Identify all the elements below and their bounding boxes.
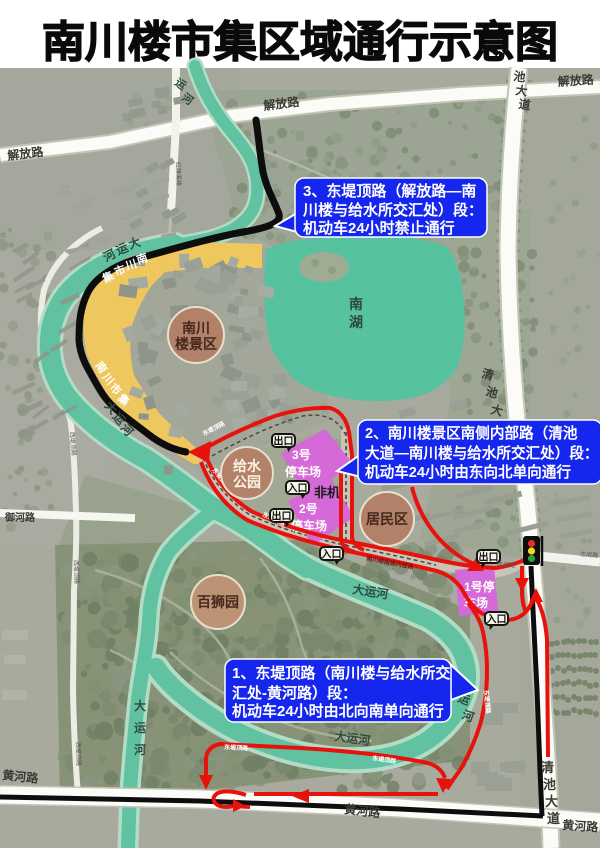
svg-text:河: 河 [133,742,146,757]
svg-text:机动车24小时禁止通行: 机动车24小时禁止通行 [303,219,455,237]
svg-text:2、南川楼景区南侧内部路（清池: 2、南川楼景区南侧内部路（清池 [365,424,578,442]
svg-text:非机: 非机 [314,485,340,500]
svg-text:1、东堤顶路（南川楼与给水所交: 1、东堤顶路（南川楼与给水所交 [232,664,450,682]
svg-text:出口: 出口 [274,435,294,448]
svg-text:停车场: 停车场 [285,464,321,479]
svg-text:出口: 出口 [272,510,292,523]
svg-text:御河路: 御河路 [4,511,36,524]
svg-text:池: 池 [543,777,556,792]
svg-text:清: 清 [541,760,554,775]
svg-text:2号: 2号 [299,501,318,516]
svg-text:黄河路: 黄河路 [562,817,600,835]
svg-text:机动车24小时由北向南单向通行: 机动车24小时由北向南单向通行 [232,702,444,720]
svg-text:入口: 入口 [288,483,308,495]
svg-text:给水: 给水 [233,458,262,474]
svg-text:3号: 3号 [292,447,311,462]
svg-text:运: 运 [134,721,146,735]
svg-text:出口: 出口 [479,551,499,564]
svg-text:南: 南 [349,296,363,312]
svg-text:大: 大 [515,82,529,99]
svg-text:解放路: 解放路 [557,71,595,89]
svg-text:楼景区: 楼景区 [175,336,217,352]
svg-text:池: 池 [513,68,527,85]
svg-text:公园: 公园 [233,474,261,490]
svg-text:道: 道 [547,811,560,826]
svg-text:大: 大 [134,698,146,713]
svg-text:川楼与给水所交汇处）段：: 川楼与给水所交汇处）段： [302,201,483,219]
svg-text:入口: 入口 [487,614,507,626]
svg-text:湖: 湖 [349,314,363,330]
svg-text:汇处-黄河路）段：: 汇处-黄河路）段： [232,684,357,702]
svg-text:3、东堤顶路（解放路—南: 3、东堤顶路（解放路—南 [303,182,476,200]
svg-text:百狮园: 百狮园 [197,594,239,610]
svg-text:机动车24小时由东向北单向通行: 机动车24小时由东向北单向通行 [365,463,571,481]
svg-text:1号停: 1号停 [464,579,495,594]
svg-text:居民区: 居民区 [366,511,408,527]
svg-text:入口: 入口 [322,549,342,561]
svg-text:大: 大 [545,794,558,809]
svg-text:南川: 南川 [182,320,210,336]
svg-text:大道—南川楼与给水所交汇处）段：: 大道—南川楼与给水所交汇处）段： [365,444,599,462]
svg-text:道: 道 [518,96,532,113]
